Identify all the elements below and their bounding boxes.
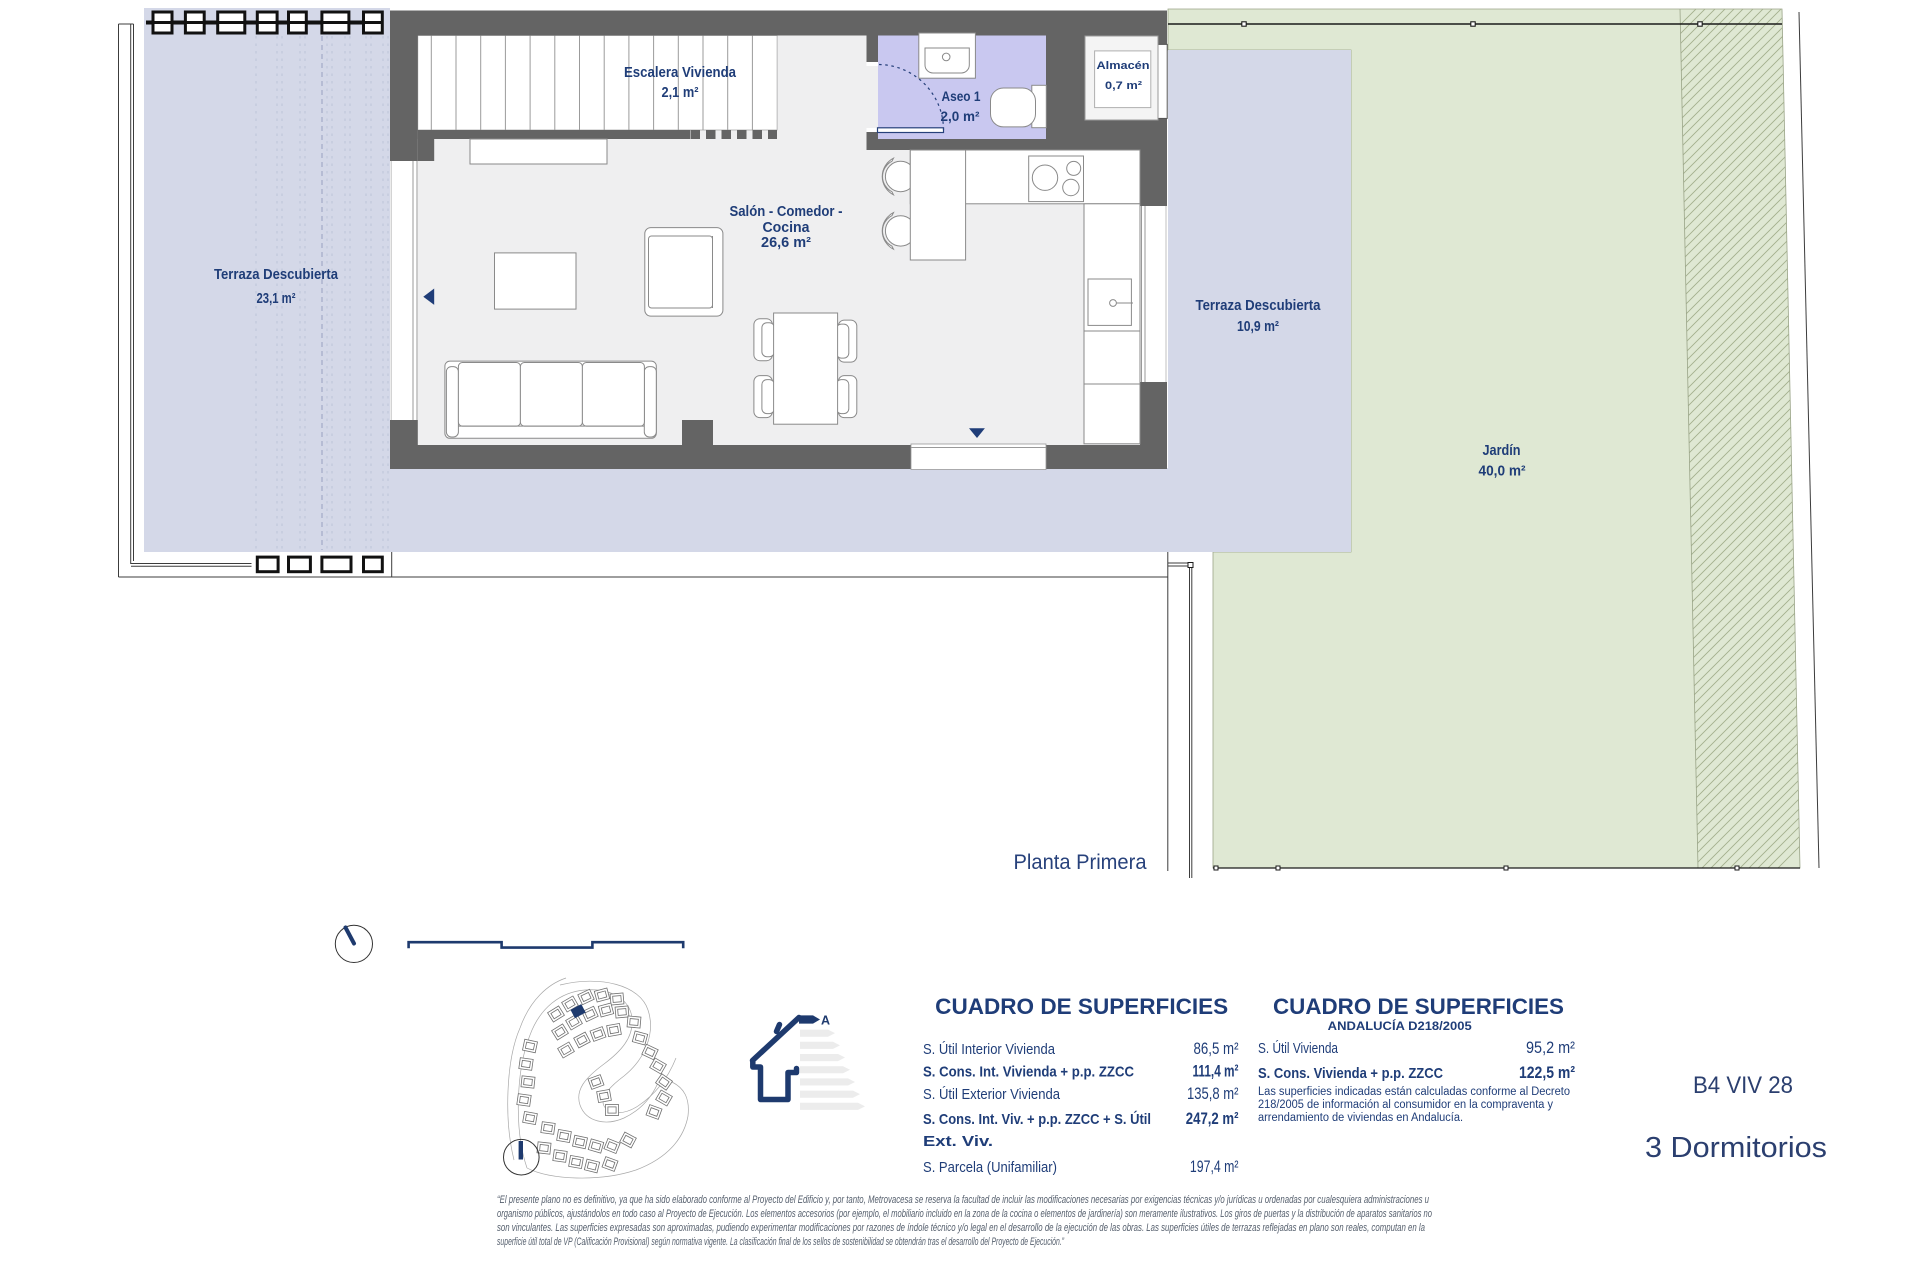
svg-text:3 Dormitorios: 3 Dormitorios [1645,1132,1827,1164]
svg-text:S. Útil Exterior Vivienda: S. Útil Exterior Vivienda [923,1086,1061,1103]
svg-text:CUADRO DE SUPERFICIES: CUADRO DE SUPERFICIES [935,994,1228,1019]
svg-text:S. Útil Interior Vivienda: S. Útil Interior Vivienda [923,1041,1056,1058]
svg-text:Terraza Descubierta: Terraza Descubierta [214,267,339,283]
svg-text:S. Cons. Vivienda + p.p. ZZCC: S. Cons. Vivienda + p.p. ZZCC [1258,1065,1443,1082]
svg-text:son vinculantes. Las superfici: son vinculantes. Las superficies expresa… [497,1222,1425,1234]
svg-text:S. Cons. Int. Viv. + p.p. ZZCC: S. Cons. Int. Viv. + p.p. ZZCC + S. Útil [923,1110,1151,1128]
svg-text:Almacén: Almacén [1097,60,1150,72]
svg-text:arrendamiento de viviendas en: arrendamiento de viviendas en Andalucía. [1258,1112,1463,1124]
svg-text:135,8 m²: 135,8 m² [1187,1084,1239,1103]
svg-text:B4 VIV 28: B4 VIV 28 [1693,1072,1793,1099]
svg-text:S. Útil Vivienda: S. Útil Vivienda [1258,1040,1339,1057]
svg-text:CUADRO DE SUPERFICIES: CUADRO DE SUPERFICIES [1273,994,1564,1019]
svg-text:A: A [821,1014,830,1028]
svg-text:Salón - Comedor -: Salón - Comedor - [730,204,843,220]
svg-text:ANDALUCÍA D218/2005: ANDALUCÍA D218/2005 [1328,1018,1472,1033]
svg-text:S. Cons. Int. Vivienda + p.p.: S. Cons. Int. Vivienda + p.p. ZZCC [923,1064,1134,1081]
svg-text:Escalera Vivienda: Escalera Vivienda [624,65,737,81]
svg-text:122,5 m²: 122,5 m² [1519,1063,1575,1082]
svg-text:2,0 m²: 2,0 m² [941,109,980,124]
svg-text:“El presente plano no es defin: “El presente plano no es definitivo, ya … [497,1194,1429,1206]
svg-text:0,7 m²: 0,7 m² [1105,80,1142,92]
svg-text:111,4 m²: 111,4 m² [1193,1062,1239,1081]
svg-text:Aseo 1: Aseo 1 [942,89,981,104]
svg-text:10,9 m²: 10,9 m² [1237,319,1279,335]
svg-text:Cocina: Cocina [763,220,811,236]
svg-text:86,5 m²: 86,5 m² [1194,1039,1239,1058]
svg-text:Jardín: Jardín [1483,443,1521,459]
svg-text:S. Parcela (Unifamiliar): S. Parcela (Unifamiliar) [923,1159,1057,1176]
svg-text:95,2 m²: 95,2 m² [1526,1038,1575,1057]
svg-text:247,2 m²: 247,2 m² [1186,1109,1239,1128]
svg-text:Las superficies indicadas está: Las superficies indicadas están calculad… [1258,1086,1570,1098]
svg-text:Planta Primera: Planta Primera [1014,851,1147,874]
svg-text:Terraza Descubierta: Terraza Descubierta [1196,298,1322,314]
svg-text:superficie útil total de VP (C: superficie útil total de VP (Calificació… [497,1236,1064,1248]
svg-text:2,1 m²: 2,1 m² [662,85,699,101]
svg-text:218/2005 de información al con: 218/2005 de información al consumidor en… [1258,1099,1553,1111]
svg-text:23,1 m²: 23,1 m² [257,291,296,307]
svg-text:26,6 m²: 26,6 m² [761,235,811,251]
svg-text:organismo públicos, ajustándol: organismo públicos, ajustándolos en todo… [497,1208,1432,1220]
svg-text:197,4 m²: 197,4 m² [1190,1157,1239,1176]
svg-text:40,0 m²: 40,0 m² [1479,464,1526,480]
svg-text:Ext. Viv.: Ext. Viv. [923,1133,993,1150]
